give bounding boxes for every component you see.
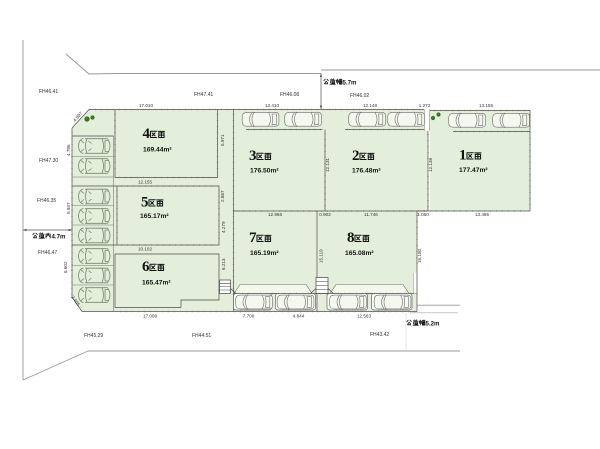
svg-text:165.19m²: 165.19m² xyxy=(250,250,279,257)
svg-text:176.48m²: 176.48m² xyxy=(352,168,381,175)
svg-text:4.844: 4.844 xyxy=(293,314,305,319)
svg-text:12.956: 12.956 xyxy=(268,212,282,217)
svg-text:13.410: 13.410 xyxy=(265,103,279,108)
svg-text:1.272: 1.272 xyxy=(419,103,431,108)
svg-text:13.155: 13.155 xyxy=(479,103,493,108)
svg-text:169.44m²: 169.44m² xyxy=(143,147,172,154)
svg-text:4.7m: 4.7m xyxy=(52,234,66,241)
svg-text:11.746: 11.746 xyxy=(364,212,378,217)
svg-text:7: 7 xyxy=(249,230,257,246)
svg-text:2: 2 xyxy=(352,148,360,164)
svg-text:FH43.42: FH43.42 xyxy=(370,332,389,338)
svg-text:12.148: 12.148 xyxy=(363,103,377,108)
svg-text:6.602: 6.602 xyxy=(63,261,68,273)
svg-text:FH47.30: FH47.30 xyxy=(39,158,58,164)
svg-text:5.971: 5.971 xyxy=(220,134,225,146)
svg-text:FH46.08: FH46.08 xyxy=(280,92,299,98)
svg-text:1.060: 1.060 xyxy=(417,212,429,217)
svg-text:FH46.35: FH46.35 xyxy=(37,198,56,204)
svg-text:5.937: 5.937 xyxy=(66,202,71,214)
svg-text:4.786: 4.786 xyxy=(66,144,71,156)
svg-text:4.279: 4.279 xyxy=(221,221,226,233)
svg-text:8: 8 xyxy=(347,230,355,246)
svg-text:165.08m²: 165.08m² xyxy=(345,250,374,257)
svg-text:15.119: 15.119 xyxy=(319,249,324,263)
svg-text:12.155: 12.155 xyxy=(138,180,152,185)
svg-text:FH44.51: FH44.51 xyxy=(192,333,211,339)
svg-text:5.2m: 5.2m xyxy=(426,321,440,328)
svg-text:165.17m²: 165.17m² xyxy=(140,213,169,220)
svg-text:6.213: 6.213 xyxy=(221,258,226,270)
svg-text:FH45.29: FH45.29 xyxy=(84,333,103,339)
svg-text:12.563: 12.563 xyxy=(357,314,371,319)
svg-text:FH46.41: FH46.41 xyxy=(39,89,58,95)
svg-text:177.47m²: 177.47m² xyxy=(459,167,488,174)
svg-text:FH46.02: FH46.02 xyxy=(350,93,369,99)
svg-text:1: 1 xyxy=(459,148,467,164)
svg-text:12.139: 12.139 xyxy=(428,158,433,172)
svg-text:13.495: 13.495 xyxy=(475,212,489,217)
svg-text:176.50m²: 176.50m² xyxy=(250,168,279,175)
svg-text:165.47m²: 165.47m² xyxy=(142,280,171,287)
svg-text:4: 4 xyxy=(143,126,151,142)
svg-text:FH46.47: FH46.47 xyxy=(38,250,57,256)
svg-text:7.700: 7.700 xyxy=(243,314,255,319)
svg-text:5: 5 xyxy=(141,195,149,211)
svg-text:12.131: 12.131 xyxy=(325,158,330,172)
svg-text:FH47.41: FH47.41 xyxy=(194,92,213,98)
svg-text:2.887: 2.887 xyxy=(220,190,225,202)
svg-text:17.010: 17.010 xyxy=(139,103,153,108)
svg-text:5.7m: 5.7m xyxy=(343,80,357,87)
svg-text:15.180: 15.180 xyxy=(417,249,422,263)
svg-text:0.902: 0.902 xyxy=(319,212,331,217)
svg-text:6: 6 xyxy=(142,259,150,275)
svg-text:10.102: 10.102 xyxy=(138,247,152,252)
svg-text:17.009: 17.009 xyxy=(143,314,157,319)
svg-text:3: 3 xyxy=(249,148,257,164)
